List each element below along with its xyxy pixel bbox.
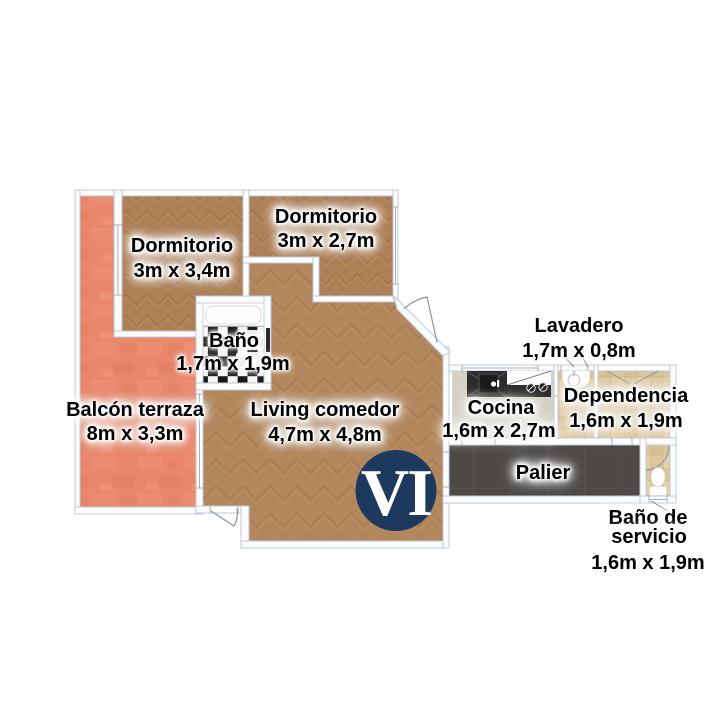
svg-text:VI: VI bbox=[361, 456, 431, 530]
